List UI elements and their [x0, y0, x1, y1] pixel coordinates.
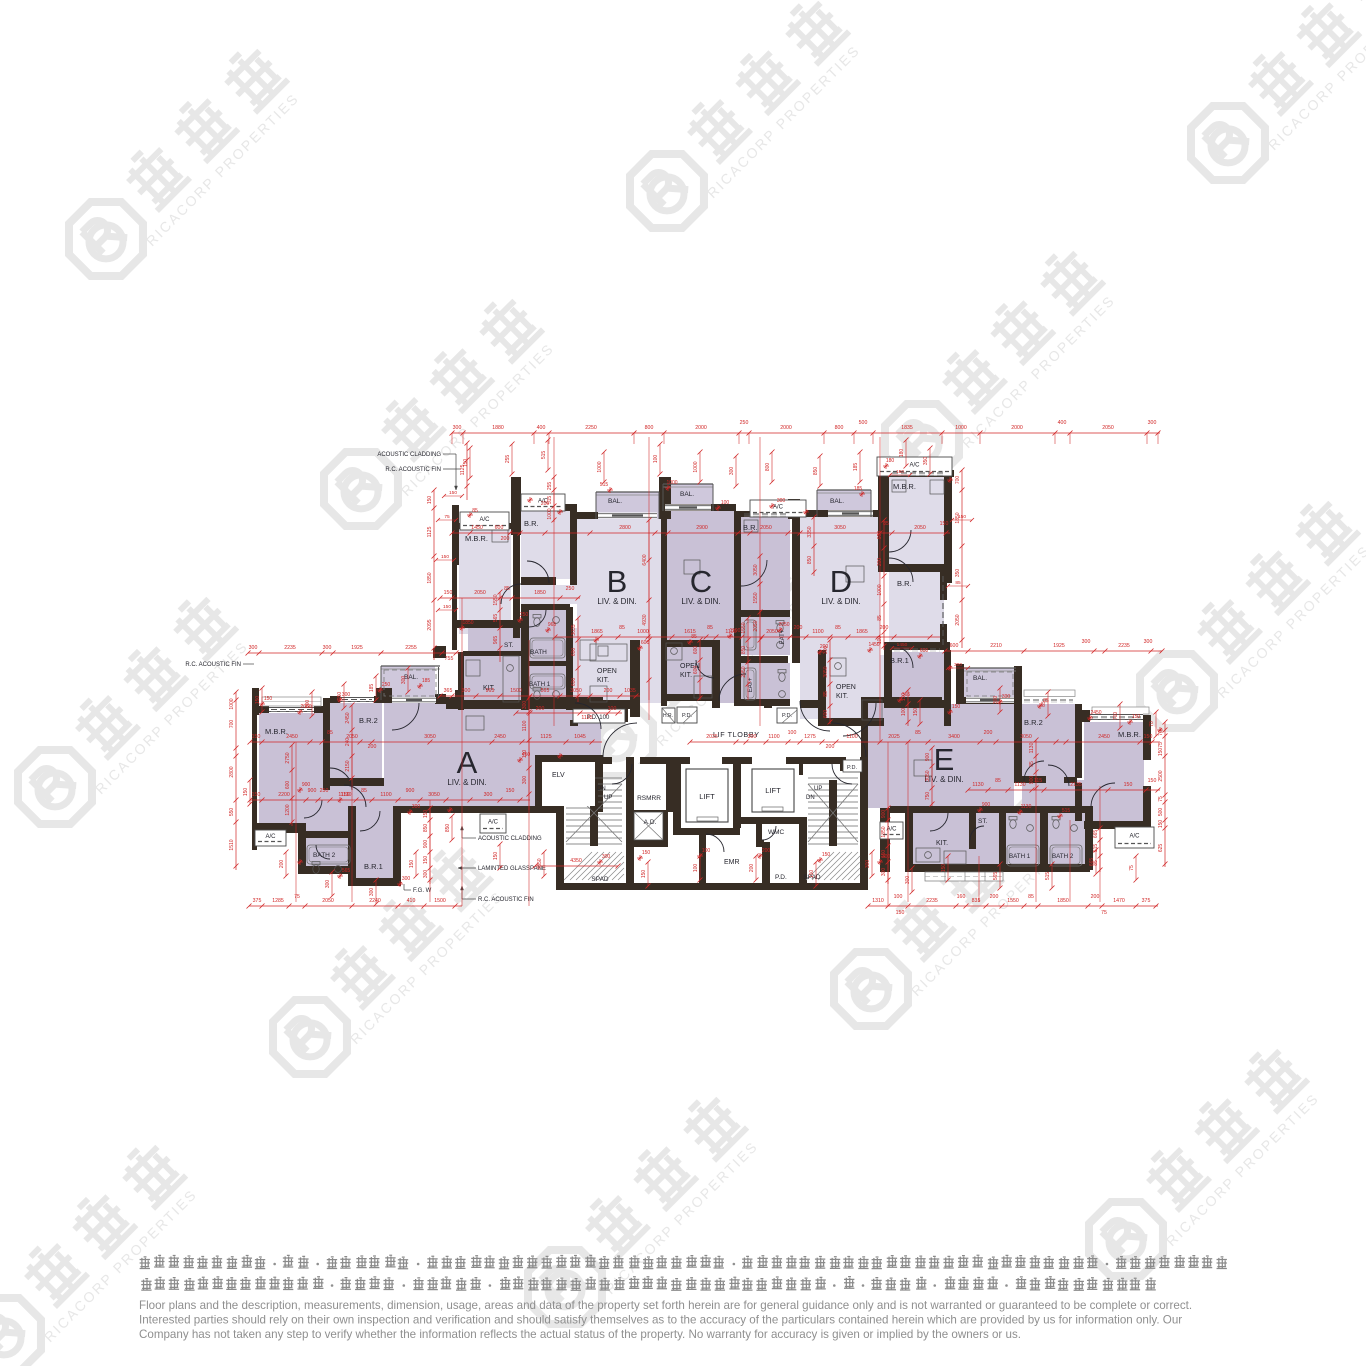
svg-text:M.B.R.: M.B.R.: [1118, 730, 1141, 739]
svg-text:1510: 1510: [229, 839, 235, 850]
svg-text:200: 200: [604, 688, 613, 694]
svg-text:150: 150: [822, 852, 831, 858]
svg-text:180: 180: [899, 449, 905, 458]
svg-text:365: 365: [902, 692, 911, 698]
svg-text:6400: 6400: [642, 554, 648, 565]
svg-text:1850: 1850: [427, 572, 433, 583]
svg-text:565: 565: [342, 868, 351, 874]
svg-text:1275: 1275: [804, 734, 816, 740]
svg-text:3050: 3050: [424, 734, 436, 740]
svg-text:300: 300: [323, 645, 332, 651]
svg-text:2800: 2800: [619, 525, 631, 531]
svg-text:1550: 1550: [1007, 898, 1019, 904]
svg-text:200: 200: [749, 864, 755, 873]
svg-text:85: 85: [823, 691, 829, 697]
svg-text:300: 300: [993, 696, 999, 705]
svg-text:2050: 2050: [778, 622, 789, 628]
svg-text:150: 150: [252, 734, 261, 740]
svg-text:150: 150: [463, 459, 469, 468]
svg-text:2250: 2250: [585, 425, 597, 431]
svg-text:200: 200: [368, 744, 377, 750]
svg-text:85: 85: [327, 730, 333, 736]
svg-text:2050: 2050: [766, 629, 778, 635]
svg-text:150: 150: [941, 864, 947, 873]
svg-text:200: 200: [794, 625, 803, 631]
svg-text:200: 200: [1091, 894, 1100, 900]
svg-text:A/C: A/C: [265, 834, 276, 840]
svg-text:150: 150: [423, 856, 429, 865]
svg-text:A/C: A/C: [479, 517, 490, 523]
svg-text:2050: 2050: [760, 525, 772, 531]
svg-text:70: 70: [1149, 721, 1155, 727]
svg-text:150: 150: [427, 496, 433, 505]
svg-text:150: 150: [441, 554, 449, 560]
svg-text:300: 300: [462, 688, 471, 694]
svg-text:250: 250: [320, 788, 329, 794]
svg-text:ST.: ST.: [978, 818, 988, 825]
svg-text:150: 150: [896, 469, 904, 475]
svg-text:1000: 1000: [597, 461, 603, 472]
svg-text:965: 965: [493, 636, 499, 645]
svg-text:A/C: A/C: [909, 463, 920, 469]
svg-text:150: 150: [1148, 778, 1157, 784]
svg-text:1200: 1200: [285, 804, 291, 815]
svg-text:300: 300: [602, 854, 611, 860]
svg-text:300: 300: [865, 860, 871, 869]
svg-text:3050: 3050: [753, 564, 759, 575]
svg-text:150: 150: [896, 910, 905, 916]
svg-text:700: 700: [229, 720, 235, 729]
svg-text:2000: 2000: [695, 425, 707, 431]
svg-text:1850: 1850: [881, 826, 887, 837]
svg-text:300: 300: [777, 498, 786, 504]
svg-text:700: 700: [955, 476, 961, 485]
svg-text:200: 200: [762, 848, 771, 854]
svg-text:KIT.: KIT.: [597, 677, 609, 684]
svg-text:BATH 2: BATH 2: [313, 852, 336, 859]
svg-text:1100: 1100: [768, 734, 779, 740]
svg-text:75: 75: [444, 514, 450, 520]
svg-text:2095: 2095: [427, 619, 433, 630]
svg-text:250: 250: [520, 612, 529, 618]
svg-text:150: 150: [423, 810, 429, 819]
svg-text:P.D.: P.D.: [847, 765, 857, 771]
svg-text:75: 75: [294, 894, 300, 900]
svg-text:LIV. & DIN.: LIV. & DIN.: [447, 778, 486, 787]
svg-text:RSMRR: RSMRR: [637, 795, 661, 802]
svg-text:BAL.: BAL.: [973, 675, 987, 682]
svg-text:A/C: A/C: [773, 505, 784, 511]
svg-text:150: 150: [1132, 714, 1141, 720]
svg-text:600: 600: [950, 643, 959, 649]
svg-text:4350: 4350: [537, 858, 543, 869]
svg-text:1865: 1865: [591, 629, 603, 635]
svg-text:1000: 1000: [693, 461, 699, 472]
svg-text:200: 200: [279, 860, 285, 869]
svg-text:1450: 1450: [897, 642, 908, 648]
svg-text:1000: 1000: [547, 508, 553, 519]
svg-text:300: 300: [1082, 639, 1091, 645]
svg-text:BATH 2: BATH 2: [1052, 853, 1074, 860]
svg-text:1130: 1130: [341, 792, 352, 798]
svg-text:300: 300: [905, 876, 911, 885]
svg-text:150: 150: [641, 870, 647, 879]
svg-text:300: 300: [954, 662, 962, 668]
svg-text:1550: 1550: [753, 592, 759, 603]
svg-text:R.C. ACOUSTIC FIN: R.C. ACOUSTIC FIN: [478, 897, 534, 903]
svg-text:515: 515: [1062, 808, 1071, 814]
svg-text:B.R.1: B.R.1: [890, 656, 909, 665]
svg-text:1450: 1450: [868, 642, 879, 648]
svg-text:LAMINTED GLASSPANE: LAMINTED GLASSPANE: [478, 866, 546, 872]
svg-text:115: 115: [1034, 778, 1042, 784]
svg-text:300: 300: [342, 692, 351, 698]
svg-text:BATH 1: BATH 1: [529, 681, 551, 688]
svg-text:UP: UP: [814, 786, 822, 792]
svg-text:375: 375: [1142, 898, 1151, 904]
svg-text:150: 150: [506, 788, 515, 794]
svg-text:1310: 1310: [872, 898, 884, 904]
svg-text:1550: 1550: [741, 622, 747, 633]
svg-text:2150: 2150: [345, 760, 351, 771]
svg-text:800: 800: [835, 425, 844, 431]
svg-text:350: 350: [955, 569, 961, 578]
svg-text:1500: 1500: [434, 898, 446, 904]
svg-text:100: 100: [788, 730, 797, 736]
svg-text:2450: 2450: [345, 712, 351, 723]
svg-text:Company has not taken any step: Company has not taken any step to verify…: [139, 1328, 1021, 1341]
svg-text:85: 85: [472, 508, 478, 514]
svg-text:800: 800: [765, 463, 771, 472]
svg-text:515: 515: [1045, 872, 1051, 881]
svg-text:2900: 2900: [696, 525, 708, 531]
svg-text:150: 150: [1158, 820, 1164, 829]
svg-text:300: 300: [453, 425, 462, 431]
svg-text:2050: 2050: [955, 614, 961, 625]
svg-text:600: 600: [920, 648, 929, 654]
svg-text:500: 500: [1158, 808, 1164, 817]
svg-text:150: 150: [443, 604, 451, 610]
svg-text:300: 300: [882, 854, 891, 860]
svg-text:965: 965: [486, 688, 495, 694]
svg-text:2000: 2000: [1011, 425, 1023, 431]
svg-text:565: 565: [493, 614, 499, 623]
svg-text:200: 200: [990, 894, 999, 900]
svg-text:KIT.: KIT.: [836, 693, 848, 700]
svg-text:LIV. & DIN.: LIV. & DIN.: [597, 597, 636, 606]
svg-text:1125: 1125: [540, 734, 551, 740]
svg-text:85: 85: [1028, 894, 1034, 900]
svg-text:85: 85: [619, 625, 625, 631]
svg-text:OPEN: OPEN: [836, 684, 856, 691]
svg-text:3400: 3400: [948, 734, 960, 740]
svg-text:2500: 2500: [1158, 770, 1164, 781]
svg-text:900: 900: [1029, 776, 1035, 785]
svg-text:300: 300: [1144, 639, 1153, 645]
svg-text:150: 150: [1124, 782, 1133, 788]
svg-text:2235: 2235: [284, 645, 296, 651]
svg-text:M.B.R.: M.B.R.: [893, 482, 916, 491]
svg-text:4350: 4350: [570, 858, 582, 864]
svg-text:300: 300: [522, 776, 528, 785]
svg-text:2450: 2450: [286, 734, 298, 740]
svg-text:85: 85: [995, 778, 1001, 784]
svg-text:185: 185: [369, 684, 375, 693]
svg-text:150: 150: [642, 850, 651, 856]
svg-text:2050: 2050: [1102, 425, 1114, 431]
svg-text:85: 85: [707, 625, 713, 631]
svg-text:150: 150: [409, 860, 415, 869]
svg-text:M.B.R.: M.B.R.: [465, 534, 488, 543]
svg-text:300: 300: [1148, 420, 1157, 426]
svg-text:755: 755: [445, 656, 454, 662]
svg-text:LIFT: LIFT: [765, 786, 781, 795]
svg-text:2450: 2450: [1098, 734, 1110, 740]
svg-text:1045: 1045: [574, 734, 586, 740]
svg-text:1000: 1000: [229, 698, 235, 709]
svg-text:Interested parties should rely: Interested parties should rely on their …: [139, 1314, 1182, 1327]
svg-text:150: 150: [444, 590, 453, 596]
svg-text:1500: 1500: [510, 688, 522, 694]
svg-text:600: 600: [823, 710, 829, 719]
svg-text:300: 300: [412, 804, 421, 810]
svg-text:1470: 1470: [1113, 898, 1125, 904]
svg-text:R.C. ACOUSTIC FIN: R.C. ACOUSTIC FIN: [185, 662, 241, 668]
svg-text:4930: 4930: [642, 614, 648, 625]
svg-text:100: 100: [901, 708, 907, 717]
svg-text:B.R.2: B.R.2: [1024, 718, 1043, 727]
svg-text:H.R.: H.R.: [663, 713, 673, 719]
svg-text:1850: 1850: [462, 620, 473, 626]
svg-text:DN: DN: [806, 795, 815, 801]
svg-text:1880: 1880: [492, 425, 504, 431]
svg-text:P.D.: P.D.: [775, 874, 787, 881]
svg-text:85: 85: [1029, 761, 1035, 767]
svg-text:600: 600: [571, 648, 577, 657]
svg-text:B.R.1: B.R.1: [364, 862, 383, 871]
svg-text:Floor plans and the descriptio: Floor plans and the description, measure…: [139, 1299, 1192, 1312]
svg-text:240: 240: [345, 738, 351, 747]
svg-text:2210: 2210: [990, 643, 1002, 649]
svg-text:M.B.R.: M.B.R.: [265, 727, 288, 736]
svg-text:2050: 2050: [914, 525, 926, 531]
svg-text:ELV: ELV: [552, 772, 565, 779]
svg-text:B.R.: B.R.: [743, 523, 758, 532]
svg-text:400: 400: [1058, 420, 1067, 426]
svg-text:3050: 3050: [925, 770, 931, 781]
svg-text:300: 300: [249, 645, 258, 651]
svg-text:150: 150: [952, 704, 961, 710]
svg-text:600: 600: [693, 646, 699, 655]
svg-text:3050: 3050: [834, 525, 846, 531]
svg-text:300: 300: [748, 734, 757, 740]
svg-text:375: 375: [253, 898, 262, 904]
svg-text:1100: 1100: [730, 628, 741, 634]
svg-text:350: 350: [923, 457, 929, 466]
svg-text:A/C: A/C: [488, 820, 499, 826]
svg-text:2050: 2050: [741, 666, 747, 677]
svg-text:300: 300: [484, 792, 493, 798]
svg-text:BAL.: BAL.: [680, 491, 694, 498]
svg-text:900: 900: [423, 840, 429, 849]
svg-text:250: 250: [382, 682, 391, 688]
svg-text:1100: 1100: [846, 734, 857, 740]
svg-text:3050: 3050: [823, 666, 829, 677]
svg-text:1100: 1100: [522, 720, 528, 731]
svg-text:85: 85: [504, 586, 510, 592]
svg-text:2255: 2255: [405, 645, 417, 651]
svg-text:300: 300: [729, 467, 735, 476]
svg-text:3050: 3050: [428, 792, 440, 798]
svg-text:100: 100: [608, 706, 617, 712]
svg-text:KIT.: KIT.: [680, 672, 692, 679]
svg-text:LIV. & DIN.: LIV. & DIN.: [821, 597, 860, 606]
svg-text:200: 200: [541, 501, 550, 507]
svg-text:1000: 1000: [955, 425, 967, 431]
svg-text:185: 185: [854, 486, 863, 492]
svg-text:85: 85: [361, 788, 367, 794]
svg-text:200: 200: [536, 706, 545, 712]
svg-text:BAL.: BAL.: [830, 498, 844, 505]
svg-text:900: 900: [881, 810, 887, 819]
svg-text:85: 85: [915, 730, 921, 736]
svg-text:100: 100: [702, 848, 711, 854]
svg-text:ACOUSTIC CLADDING: ACOUSTIC CLADDING: [377, 452, 441, 458]
svg-text:850: 850: [813, 467, 819, 476]
svg-text:150: 150: [252, 792, 261, 798]
svg-text:B: B: [607, 564, 628, 599]
svg-text:1865: 1865: [856, 629, 868, 635]
svg-text:900: 900: [406, 788, 415, 794]
svg-text:WMC: WMC: [768, 829, 785, 836]
svg-text:R.C. ACOUSTIC FIN: R.C. ACOUSTIC FIN: [385, 467, 441, 473]
svg-text:2450: 2450: [494, 734, 506, 740]
svg-text:C: C: [690, 564, 712, 599]
svg-text:75: 75: [1101, 910, 1107, 916]
svg-text:600: 600: [693, 666, 699, 675]
svg-text:750: 750: [925, 792, 931, 801]
svg-text:85: 85: [835, 625, 841, 631]
svg-text:3350: 3350: [807, 526, 813, 537]
svg-text:300: 300: [325, 880, 331, 889]
svg-text:BAL.: BAL.: [608, 498, 622, 505]
svg-text:75: 75: [1158, 742, 1164, 748]
svg-text:300: 300: [402, 876, 411, 882]
svg-text:300: 300: [522, 701, 528, 710]
svg-text:625: 625: [1158, 844, 1164, 853]
svg-text:150: 150: [264, 696, 273, 702]
svg-text:E: E: [934, 742, 955, 777]
svg-text:2135: 2135: [1070, 782, 1082, 788]
svg-text:85: 85: [955, 580, 961, 586]
svg-text:250: 250: [566, 586, 575, 592]
svg-text:LIV. & DIN.: LIV. & DIN.: [681, 597, 720, 606]
svg-text:200: 200: [820, 644, 829, 650]
svg-text:850: 850: [423, 824, 429, 833]
svg-text:1000: 1000: [637, 629, 649, 635]
svg-text:1450: 1450: [471, 525, 483, 531]
svg-text:150: 150: [958, 514, 966, 520]
svg-text:ACOUSTIC CLADDING: ACOUSTIC CLADDING: [478, 836, 542, 842]
svg-text:150: 150: [493, 852, 499, 861]
svg-text:OPEN: OPEN: [597, 668, 617, 675]
svg-text:BATH 1: BATH 1: [1009, 853, 1031, 860]
svg-text:565: 565: [541, 688, 550, 694]
svg-text:500: 500: [859, 420, 868, 426]
svg-text:300: 300: [881, 868, 887, 877]
svg-text:85: 85: [1043, 698, 1049, 704]
svg-text:1130: 1130: [1029, 742, 1035, 753]
svg-text:850: 850: [807, 556, 813, 565]
svg-text:410: 410: [407, 898, 416, 904]
svg-text:300: 300: [401, 676, 407, 685]
svg-text:600: 600: [495, 525, 504, 531]
svg-text:665: 665: [1093, 830, 1099, 839]
svg-text:LIFT: LIFT: [699, 792, 715, 801]
svg-text:1850: 1850: [534, 590, 546, 596]
svg-text:EMR: EMR: [724, 859, 740, 866]
svg-text:1285: 1285: [272, 898, 284, 904]
svg-text:1100: 1100: [812, 629, 823, 635]
svg-text:150: 150: [255, 696, 261, 705]
svg-text:BATH: BATH: [530, 649, 547, 656]
svg-text:2050: 2050: [322, 898, 334, 904]
svg-text:B.R.2: B.R.2: [359, 716, 378, 725]
svg-text:2000: 2000: [780, 425, 792, 431]
svg-text:2200: 2200: [278, 792, 290, 798]
svg-text:255: 255: [547, 482, 553, 491]
svg-text:200: 200: [984, 730, 993, 736]
svg-text:250: 250: [740, 420, 749, 426]
svg-text:515: 515: [541, 451, 547, 460]
svg-text:2025: 2025: [888, 734, 900, 740]
svg-text:1000: 1000: [666, 480, 677, 486]
svg-text:2235: 2235: [1118, 643, 1130, 649]
svg-text:965: 965: [548, 622, 557, 628]
svg-text:150: 150: [913, 708, 919, 717]
svg-text:2800: 2800: [229, 766, 235, 777]
svg-text:1835: 1835: [901, 425, 913, 431]
svg-text:150: 150: [449, 490, 457, 496]
svg-text:EAT+: EAT+: [748, 677, 754, 692]
svg-text:A.D.: A.D.: [644, 819, 657, 826]
svg-text:300: 300: [423, 870, 429, 879]
svg-text:A: A: [457, 745, 478, 780]
svg-text:900: 900: [925, 753, 931, 762]
svg-text:160: 160: [957, 894, 966, 900]
svg-text:150: 150: [809, 870, 815, 879]
svg-text:DN: DN: [597, 786, 606, 792]
svg-text:100: 100: [721, 500, 730, 506]
svg-text:1135: 1135: [581, 715, 592, 721]
svg-text:200: 200: [826, 744, 835, 750]
svg-text:300: 300: [369, 888, 375, 897]
svg-text:2035: 2035: [706, 734, 718, 740]
svg-text:1850: 1850: [1057, 898, 1069, 904]
svg-text:185: 185: [422, 678, 431, 684]
svg-text:100: 100: [693, 864, 699, 873]
svg-text:1130: 1130: [1014, 782, 1025, 788]
svg-text:565: 565: [993, 872, 999, 881]
svg-text:1550: 1550: [493, 594, 499, 605]
svg-text:D: D: [830, 564, 852, 599]
svg-text:900: 900: [308, 788, 317, 794]
svg-text:2240: 2240: [369, 898, 381, 904]
svg-text:150: 150: [1144, 734, 1153, 740]
svg-text:1125: 1125: [427, 526, 433, 537]
svg-text:150: 150: [1158, 748, 1164, 757]
svg-text:600: 600: [641, 640, 650, 646]
